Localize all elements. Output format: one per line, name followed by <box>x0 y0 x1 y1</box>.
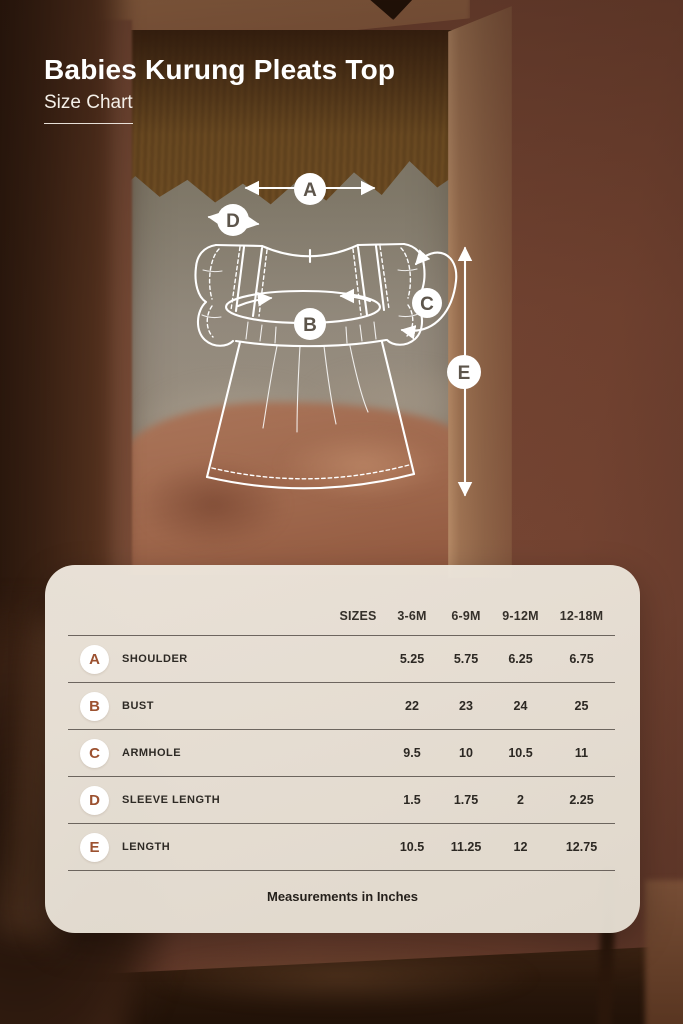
cell-value: 6.75 <box>548 652 615 666</box>
cell-value: 6.25 <box>493 652 548 666</box>
row-badge-b: B <box>80 692 109 721</box>
cell-value: 2.25 <box>548 793 615 807</box>
cell-value: 25 <box>548 699 615 713</box>
size-chart-infographic: Babies Kurung Pleats Top Size Chart <box>0 0 683 1024</box>
units-note: Measurements in Inches <box>45 871 640 904</box>
divider <box>68 682 615 683</box>
cell-value: 2 <box>493 793 548 807</box>
row-label-length: LENGTH <box>122 841 170 853</box>
table-row-sleeve-length: D SLEEVE LENGTH 1.5 1.75 2 2.25 <box>45 777 640 823</box>
header: Babies Kurung Pleats Top Size Chart <box>44 54 395 124</box>
cell-value: 12.75 <box>548 840 615 854</box>
cell-value: 10.5 <box>385 840 439 854</box>
cell-value: 1.75 <box>439 793 493 807</box>
col-header-6-9m: 6-9M <box>439 609 493 623</box>
row-badge-a: A <box>80 645 109 674</box>
col-header-12-18m: 12-18M <box>548 609 615 623</box>
col-header-sizes: SIZES <box>331 609 385 623</box>
row-badge-c: C <box>80 739 109 768</box>
cell-value: 10 <box>439 746 493 760</box>
page-subtitle: Size Chart <box>44 92 133 124</box>
cell-value: 23 <box>439 699 493 713</box>
cell-value: 5.25 <box>385 652 439 666</box>
cell-value: 1.5 <box>385 793 439 807</box>
cell-value: 11.25 <box>439 840 493 854</box>
cell-value: 10.5 <box>493 746 548 760</box>
divider <box>68 823 615 824</box>
table-row-armhole: C ARMHOLE 9.5 10 10.5 11 <box>45 730 640 776</box>
row-label-shoulder: SHOULDER <box>122 653 188 665</box>
page-title: Babies Kurung Pleats Top <box>44 54 395 86</box>
cell-value: 11 <box>548 746 615 760</box>
divider <box>68 776 615 777</box>
cell-value: 12 <box>493 840 548 854</box>
col-header-3-6m: 3-6M <box>385 609 439 623</box>
cell-value: 22 <box>385 699 439 713</box>
divider <box>68 729 615 730</box>
divider <box>68 870 615 871</box>
table-row-shoulder: A SHOULDER 5.25 5.75 6.25 6.75 <box>45 636 640 682</box>
row-label-sleeve-length: SLEEVE LENGTH <box>122 794 220 806</box>
divider <box>68 635 615 636</box>
row-badge-d: D <box>80 786 109 815</box>
table-row-length: E LENGTH 10.5 11.25 12 12.75 <box>45 824 640 870</box>
size-chart-panel: SIZES 3-6M 6-9M 9-12M 12-18M A SHOULDER … <box>45 565 640 933</box>
table-row-bust: B BUST 22 23 24 25 <box>45 683 640 729</box>
cell-value: 9.5 <box>385 746 439 760</box>
row-badge-e: E <box>80 833 109 862</box>
cell-value: 24 <box>493 699 548 713</box>
cell-value: 5.75 <box>439 652 493 666</box>
col-header-9-12m: 9-12M <box>493 609 548 623</box>
table-header-row: SIZES 3-6M 6-9M 9-12M 12-18M <box>45 565 640 635</box>
row-label-armhole: ARMHOLE <box>122 747 181 759</box>
row-label-bust: BUST <box>122 700 154 712</box>
